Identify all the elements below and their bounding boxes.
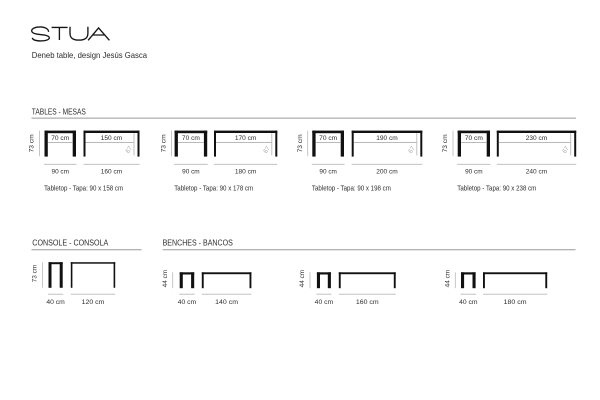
- svg-text:90 cm: 90 cm: [319, 169, 337, 176]
- svg-text:Tabletop - Tapa: 90 x 158 cm: Tabletop - Tapa: 90 x 158 cm: [44, 186, 123, 193]
- svg-text:44 cm: 44 cm: [445, 269, 452, 287]
- svg-text:150 cm: 150 cm: [101, 135, 123, 142]
- svg-text:70 cm: 70 cm: [319, 135, 337, 142]
- svg-text:230 cm: 230 cm: [526, 135, 548, 142]
- svg-text:73 cm: 73 cm: [161, 134, 168, 152]
- svg-text:44 cm: 44 cm: [162, 269, 169, 287]
- svg-text:44 cm: 44 cm: [299, 269, 306, 287]
- svg-text:40 cm: 40 cm: [46, 299, 65, 306]
- svg-text:73 cm: 73 cm: [32, 264, 39, 282]
- svg-text:160 cm: 160 cm: [101, 169, 123, 176]
- svg-text:CONSOLE - CONSOLA: CONSOLE - CONSOLA: [32, 239, 109, 248]
- svg-text:140 cm: 140 cm: [215, 299, 238, 306]
- svg-text:120 cm: 120 cm: [82, 299, 105, 306]
- svg-text:190 cm: 190 cm: [376, 135, 398, 142]
- svg-text:Tabletop - Tapa: 90 x 238 cm: Tabletop - Tapa: 90 x 238 cm: [457, 186, 536, 193]
- svg-text:90 cm: 90 cm: [465, 169, 483, 176]
- svg-text:Deneb table, design Jesús Gasc: Deneb table, design Jesús Gasca: [32, 50, 147, 60]
- svg-text:240 cm: 240 cm: [526, 169, 548, 176]
- svg-text:40 cm: 40 cm: [459, 299, 478, 306]
- svg-text:Tabletop - Tapa: 90 x 178 cm: Tabletop - Tapa: 90 x 178 cm: [174, 186, 253, 193]
- svg-text:90 cm: 90 cm: [52, 169, 70, 176]
- svg-text:73 cm: 73 cm: [297, 134, 304, 152]
- svg-text:BENCHES - BANCOS: BENCHES - BANCOS: [163, 239, 233, 248]
- svg-text:70 cm: 70 cm: [51, 135, 69, 142]
- svg-text:70 cm: 70 cm: [465, 135, 483, 142]
- svg-text:170 cm: 170 cm: [235, 135, 257, 142]
- svg-text:40 cm: 40 cm: [315, 299, 334, 306]
- svg-text:40 cm: 40 cm: [178, 299, 197, 306]
- svg-text:73 cm: 73 cm: [442, 134, 449, 152]
- svg-text:180 cm: 180 cm: [235, 169, 257, 176]
- svg-text:90 cm: 90 cm: [182, 169, 200, 176]
- svg-text:73 cm: 73 cm: [29, 134, 36, 152]
- svg-text:160 cm: 160 cm: [356, 299, 379, 306]
- svg-text:TABLES - MESAS: TABLES - MESAS: [32, 107, 86, 116]
- svg-text:Tabletop - Tapa: 90 x 198 cm: Tabletop - Tapa: 90 x 198 cm: [312, 186, 391, 193]
- svg-text:200 cm: 200 cm: [376, 169, 398, 176]
- svg-text:180 cm: 180 cm: [504, 299, 527, 306]
- svg-text:70 cm: 70 cm: [182, 135, 200, 142]
